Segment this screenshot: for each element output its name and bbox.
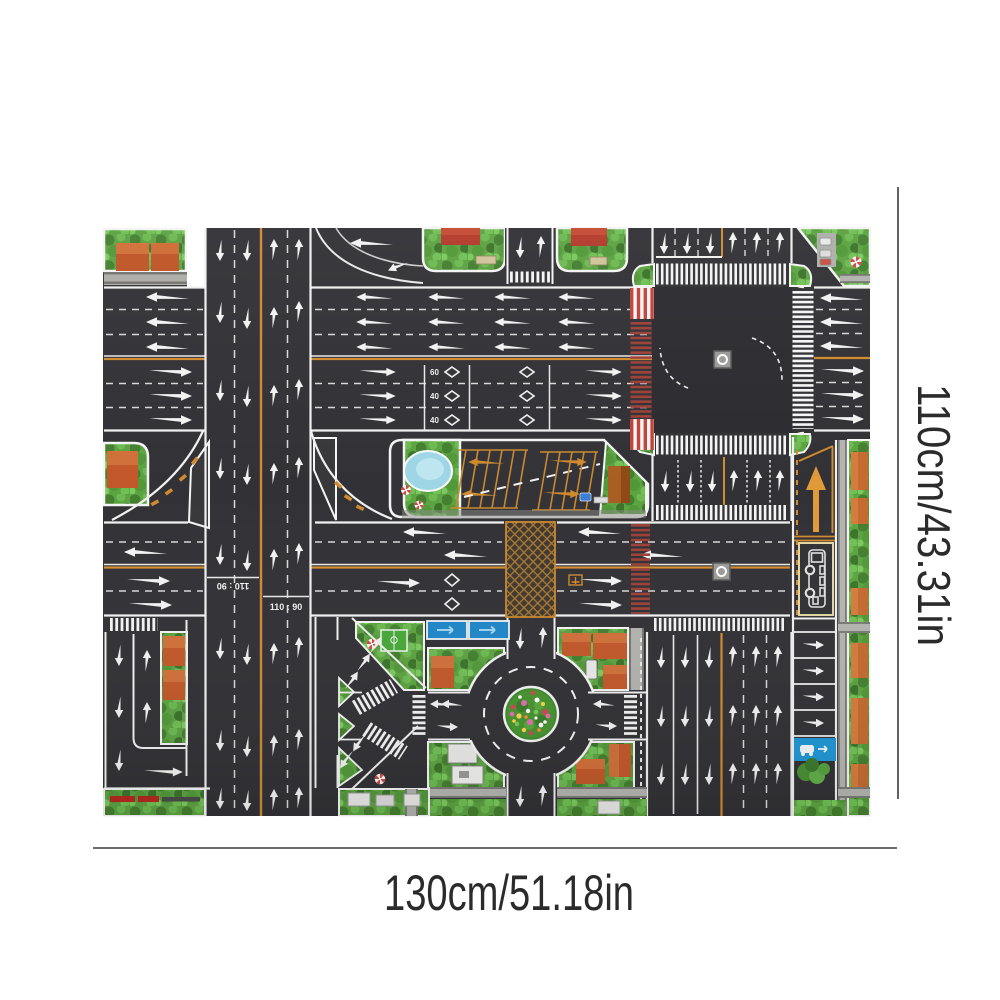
svg-text:110cm/43.31in: 110cm/43.31in <box>908 384 960 646</box>
svg-text:130cm/51.18in: 130cm/51.18in <box>384 865 634 921</box>
